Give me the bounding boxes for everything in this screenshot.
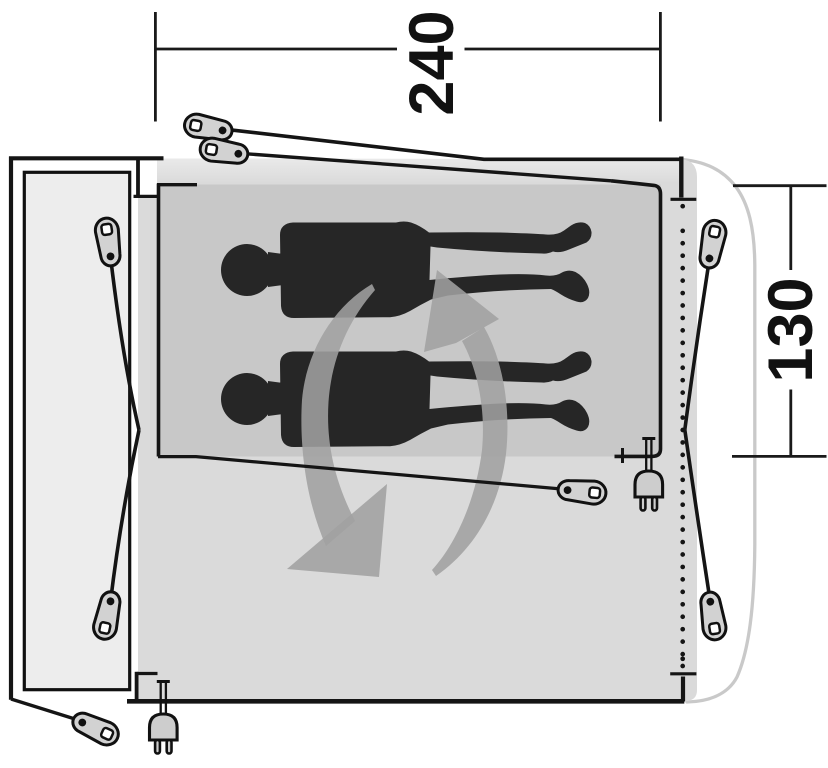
svg-text:240: 240 [397, 10, 467, 115]
svg-text:130: 130 [756, 277, 826, 382]
